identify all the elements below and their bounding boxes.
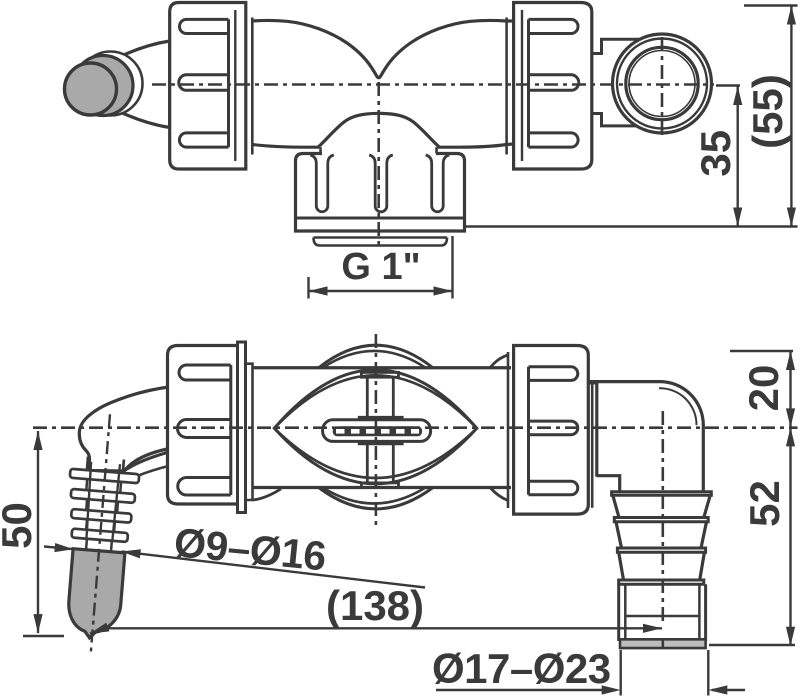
- svg-text:(55): (55): [744, 74, 791, 149]
- svg-text:20: 20: [740, 365, 787, 412]
- svg-text:Ø9–Ø16: Ø9–Ø16: [172, 519, 328, 579]
- svg-text:Ø17–Ø23: Ø17–Ø23: [432, 645, 611, 692]
- svg-text:(138): (138): [326, 582, 424, 629]
- svg-text:50: 50: [0, 502, 40, 549]
- svg-text:35: 35: [692, 130, 739, 177]
- svg-text:G 1": G 1": [341, 246, 420, 288]
- svg-text:52: 52: [741, 480, 788, 527]
